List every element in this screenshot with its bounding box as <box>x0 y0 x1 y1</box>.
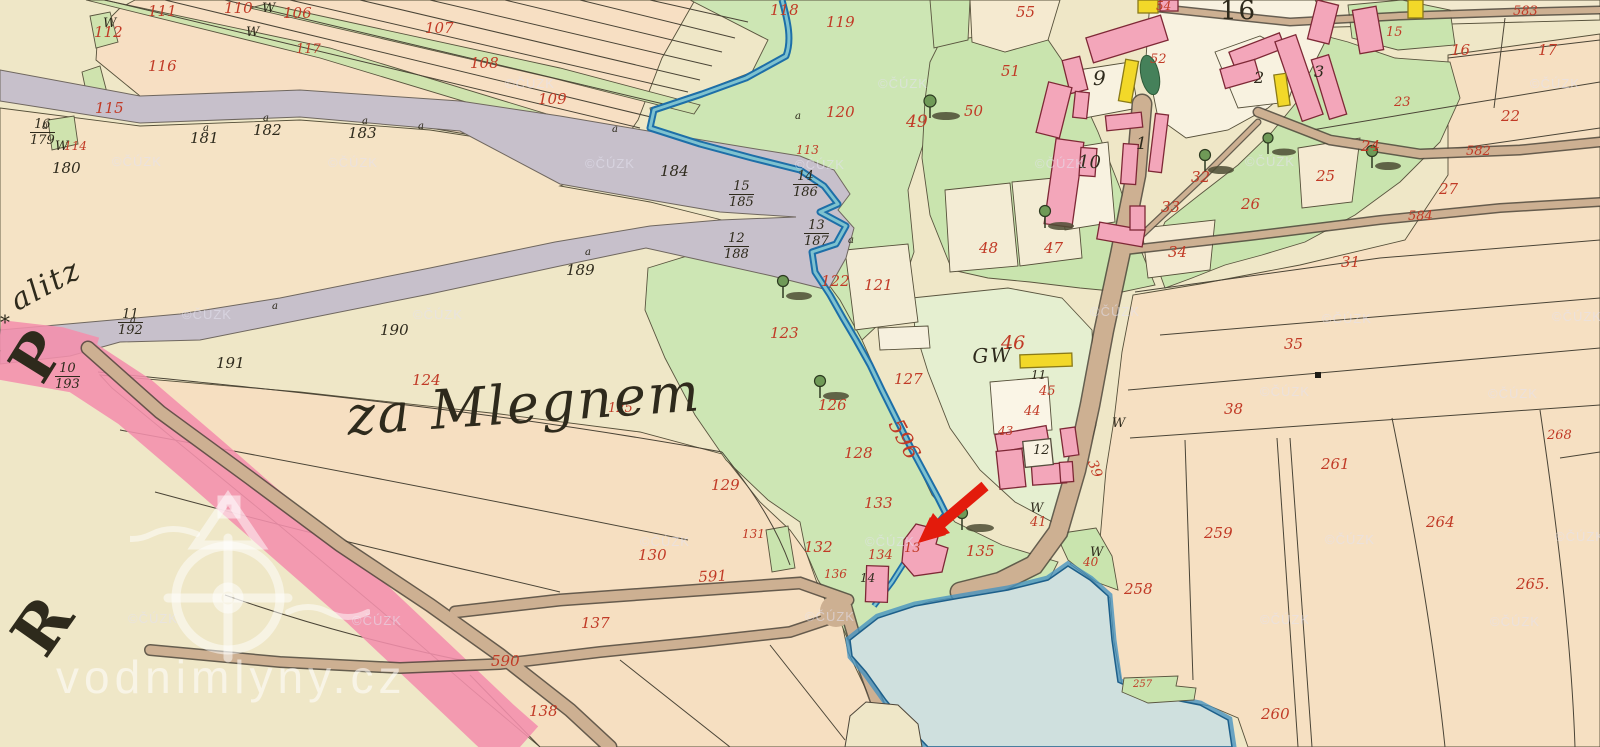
white-building-12 <box>1023 439 1054 468</box>
yellow-building-11 <box>1020 353 1072 368</box>
map-canvas[interactable]: 1111101061071081091121171161151141181191… <box>0 0 1600 747</box>
boundary-stone <box>1315 372 1321 378</box>
cadastral-map-drawing <box>0 0 1600 747</box>
